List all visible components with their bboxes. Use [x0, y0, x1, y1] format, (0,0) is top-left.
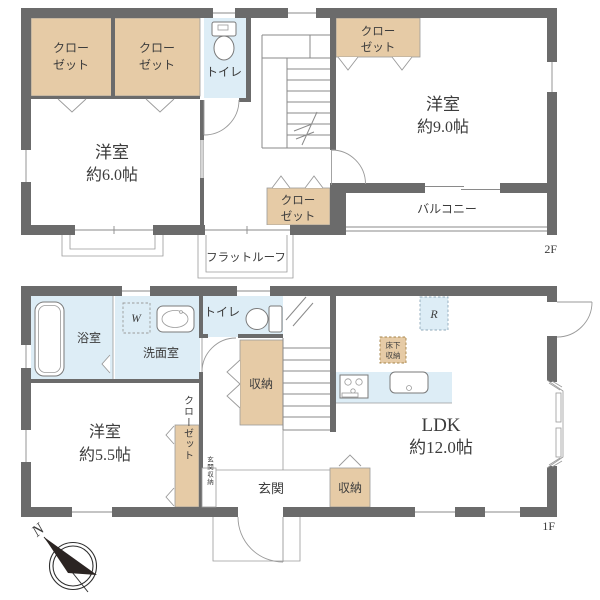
closet-1f-label: クローゼット — [182, 395, 194, 461]
stairs-2f-icon — [262, 35, 330, 148]
room-west-2f-name: 洋室 — [95, 143, 129, 162]
closet-2f-left-a-label-2: ゼット — [53, 58, 89, 72]
bay-window-icon — [547, 380, 563, 468]
roof-outline-left — [62, 235, 163, 256]
room-east-2f-name: 洋室 — [426, 95, 460, 114]
toilet-2f-label: トイレ — [206, 65, 242, 79]
fridge-label: R — [429, 307, 438, 321]
toilet-1f-label: トイレ — [204, 305, 240, 319]
balcony — [346, 227, 547, 231]
closet-2f-left-b-label-1: クロー — [139, 41, 175, 55]
ldk-size: 約12.0帖 — [409, 438, 473, 457]
bath-label: 浴室 — [77, 330, 101, 345]
ldk-name: LDK — [421, 415, 460, 436]
floor-plan-svg: クロー ゼット クロー ゼット トイレ クロー ゼット 洋室 約6.0帖 洋室 … — [0, 0, 600, 600]
washer-label: W — [131, 313, 142, 325]
compass-north-label: N — [28, 520, 49, 541]
room-east-2f-size: 約9.0帖 — [417, 118, 469, 136]
room-west-2f-size: 約6.0帖 — [86, 166, 138, 184]
closet-2f-left-fill — [31, 18, 200, 96]
closet-2f-right-label-2: ゼット — [361, 41, 396, 54]
closet-2f-center-label-2: ゼット — [281, 210, 316, 223]
floor1-plan: 浴室 W 洗面室 トイレ 収納 洋室 約5.5帖 クローゼット 玄関収納 玄関 … — [21, 286, 592, 562]
underfloor-storage-label-1: 床下 — [386, 340, 401, 350]
stairs-1f-icon — [283, 297, 330, 430]
stove-icon — [340, 375, 368, 398]
closet-2f-center-label-1: クロー — [281, 194, 316, 207]
closet-2f-left-a-label-1: クロー — [53, 41, 89, 55]
floor2-plan: クロー ゼット クロー ゼット トイレ クロー ゼット 洋室 約6.0帖 洋室 … — [21, 8, 557, 278]
balcony-label: バルコニー — [417, 202, 477, 216]
storage-stair-label: 収納 — [249, 377, 273, 391]
toilet-icon-2f — [212, 22, 236, 60]
compass-icon: N — [28, 520, 97, 592]
floor1-label: 1F — [542, 519, 555, 533]
closet-2f-right-label-1: クロー — [361, 25, 396, 38]
flat-roof-label: フラットルーフ — [206, 252, 286, 264]
floor2-label: 2F — [544, 242, 557, 256]
washbasin-icon — [157, 306, 194, 332]
washroom-label: 洗面室 — [143, 345, 179, 360]
doors-2f — [204, 98, 366, 185]
room-west-1f-name: 洋室 — [89, 423, 121, 441]
bathtub-icon — [35, 302, 64, 376]
floor-plan-page: クロー ゼット クロー ゼット トイレ クロー ゼット 洋室 約6.0帖 洋室 … — [0, 0, 600, 600]
underfloor-storage-label-2: 収納 — [386, 350, 401, 360]
entrance-label: 玄関 — [258, 481, 284, 496]
storage-entry-label: 収納 — [338, 481, 362, 495]
closet-2f-left-b-label-2: ゼット — [139, 58, 175, 72]
room-west-1f-size: 約5.5帖 — [79, 446, 131, 464]
